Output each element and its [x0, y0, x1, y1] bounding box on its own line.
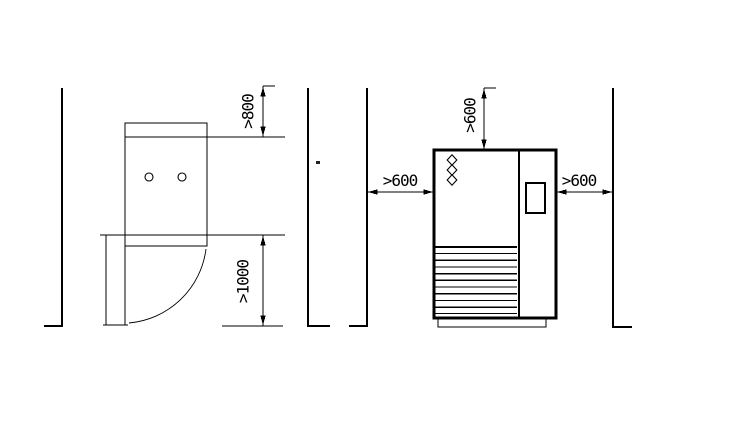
dim-top-clearance: [481, 88, 496, 150]
arrowhead-up-icon: [481, 89, 486, 99]
arrowhead-right-icon: [603, 189, 613, 194]
indicator-diamond-icons: [447, 155, 457, 185]
dim-label-left-clearance: >600: [370, 172, 430, 189]
dim-right-clearance: [556, 189, 613, 194]
front-view: [434, 150, 556, 327]
plan-view: [100, 123, 285, 325]
dim-label-right-clearance: >600: [549, 172, 609, 189]
vent-louvers: [434, 247, 517, 314]
knob-circle-left: [145, 173, 153, 181]
arrowhead-down-icon: [260, 127, 265, 137]
arrowhead-left-icon: [557, 189, 567, 194]
dim-front-clearance: [260, 86, 275, 137]
dim-left-clearance: [367, 189, 434, 194]
door-handle: [526, 183, 545, 213]
wall-line-right-outer: [613, 88, 632, 327]
diagram-linework: [0, 0, 731, 437]
wall-line-left-outer: [44, 88, 62, 326]
arrowhead-right-icon: [424, 189, 434, 194]
wall-lines: [44, 88, 632, 327]
cabinet-base: [438, 318, 546, 327]
door-open-panel: [103, 235, 128, 325]
door-swing-arc: [129, 249, 206, 323]
plan-cabinet-outline: [125, 123, 207, 246]
dim-door-clearance: [222, 235, 283, 326]
wall-line-right-inner: [349, 88, 367, 326]
dim-label-door-clearance: >1000: [235, 247, 252, 317]
arrowhead-up-icon: [260, 87, 265, 97]
stray-mark: [316, 161, 320, 164]
arrowhead-left-icon: [368, 189, 378, 194]
arrowhead-down-icon: [481, 140, 486, 150]
arrowhead-up-icon: [260, 236, 265, 246]
arrowhead-down-icon: [260, 316, 265, 326]
knob-circle-right: [178, 173, 186, 181]
wall-line-left-inner: [308, 88, 330, 326]
dim-label-top-clearance: >600: [462, 86, 479, 146]
installation-clearance-diagram: >800 >1000 >600 >600 >600: [0, 0, 731, 437]
dim-label-front-clearance: >800: [240, 82, 257, 142]
